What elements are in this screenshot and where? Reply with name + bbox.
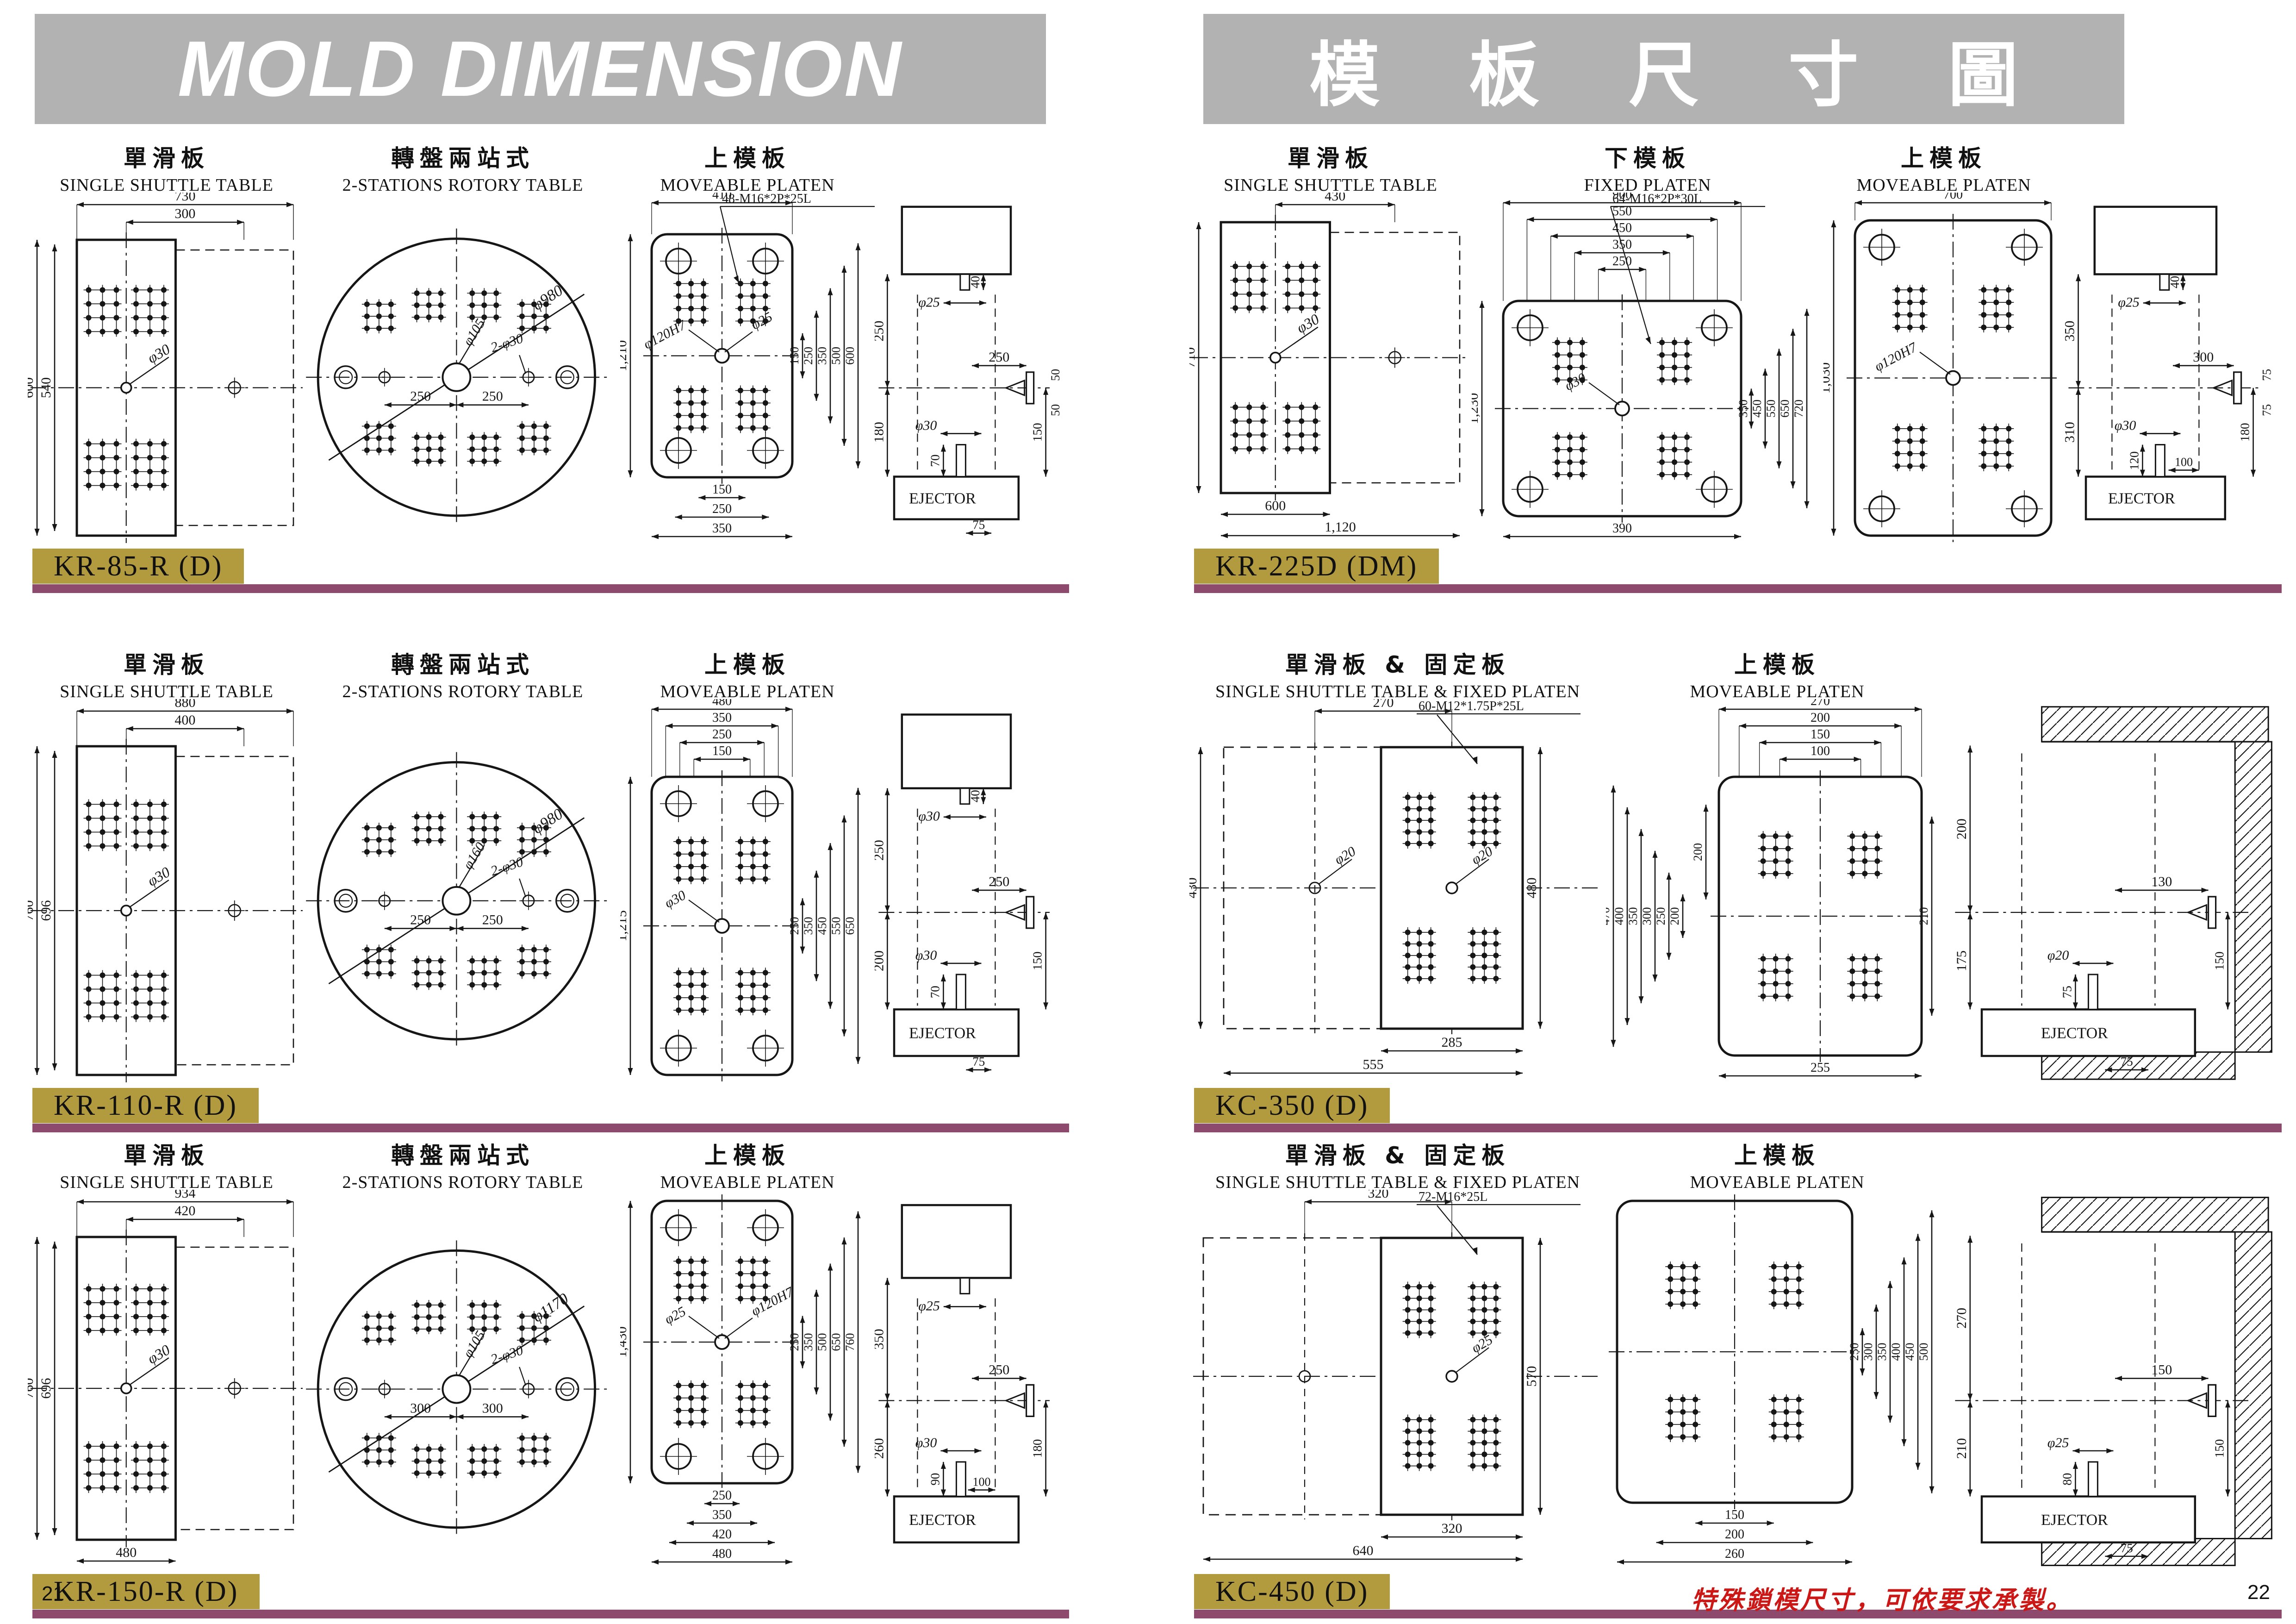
svg-text:720: 720	[1792, 400, 1805, 418]
col-header: 上模板 MOVEABLE PLATEN	[620, 644, 875, 699]
page-title-right: 模 板 尺 寸 圖	[1203, 14, 2124, 124]
col-header: 上模板 MOVEABLE PLATEN	[620, 1135, 875, 1190]
svg-text:350: 350	[712, 521, 732, 536]
svg-text:320: 320	[1368, 1190, 1389, 1201]
svg-text:390: 390	[1612, 521, 1632, 536]
svg-text:500: 500	[815, 1333, 829, 1351]
page-number-left: 21	[42, 1582, 64, 1605]
svg-text:150: 150	[712, 482, 732, 497]
svg-text:75: 75	[972, 1055, 985, 1068]
drawing-kr150-shuttle-table: φ30934420760696480	[28, 1190, 305, 1573]
svg-text:40: 40	[968, 790, 982, 802]
svg-text:200: 200	[1811, 711, 1830, 725]
svg-text:150: 150	[712, 744, 732, 758]
drawing-kr150-rotary-table: φ1170φ1052-φ30300300	[305, 1190, 620, 1573]
svg-text:48-M16*2P*25L: 48-M16*2P*25L	[722, 193, 811, 206]
svg-text:250: 250	[1848, 1343, 1861, 1361]
svg-text:555: 555	[1363, 1057, 1384, 1072]
drawing-kr110-shuttle-table: φ30880400760696	[28, 699, 305, 1087]
svg-text:64-M16*2P*30L: 64-M16*2P*30L	[1612, 193, 1702, 206]
accent-bar	[32, 1124, 1069, 1132]
svg-text:250: 250	[875, 321, 886, 342]
svg-text:EJECTOR: EJECTOR	[909, 1025, 976, 1042]
svg-text:2-φ30: 2-φ30	[489, 854, 525, 879]
svg-text:350: 350	[712, 1508, 732, 1522]
svg-text:75: 75	[2060, 986, 2074, 998]
svg-text:φ20: φ20	[1332, 843, 1358, 868]
svg-text:φ20: φ20	[2047, 948, 2069, 963]
svg-text:600: 600	[28, 377, 36, 398]
svg-text:φ30: φ30	[2115, 418, 2136, 433]
svg-text:270: 270	[1373, 699, 1394, 710]
svg-text:2-φ30: 2-φ30	[489, 331, 525, 356]
svg-text:300: 300	[1861, 1343, 1875, 1361]
svg-text:250: 250	[989, 874, 1009, 889]
svg-text:420: 420	[174, 1203, 195, 1218]
svg-text:φ120H7: φ120H7	[1872, 339, 1920, 375]
svg-text:300: 300	[482, 1400, 503, 1416]
svg-text:350: 350	[712, 711, 732, 725]
svg-text:180: 180	[2238, 423, 2252, 442]
svg-text:75: 75	[972, 518, 985, 532]
svg-text:φ25: φ25	[2118, 294, 2140, 310]
svg-text:270: 270	[1954, 1308, 1969, 1329]
svg-text:200: 200	[1691, 843, 1705, 861]
svg-text:350: 350	[1875, 1343, 1889, 1361]
svg-text:255: 255	[1811, 1061, 1830, 1075]
svg-text:150: 150	[2151, 1362, 2172, 1377]
svg-text:1,120: 1,120	[1325, 519, 1356, 535]
svg-text:640: 640	[1353, 1543, 1374, 1558]
svg-text:150: 150	[788, 347, 801, 365]
svg-text:70: 70	[928, 455, 942, 467]
drawing-kr150-moveable-platen: φ25φ120H72503504204802503505006507601,43…	[620, 1190, 875, 1573]
svg-text:600: 600	[1265, 498, 1286, 513]
col-header: 上模板 MOVEABLE PLATEN	[620, 138, 875, 193]
svg-text:760: 760	[843, 1333, 857, 1351]
svg-text:EJECTOR: EJECTOR	[2041, 1025, 2108, 1042]
col-header: 上模板 MOVEABLE PLATEN	[1823, 138, 2064, 193]
svg-text:40: 40	[2168, 276, 2182, 288]
svg-text:EJECTOR: EJECTOR	[2108, 490, 2175, 507]
col-header: 上模板 MOVEABLE PLATEN	[1606, 1135, 1948, 1190]
svg-text:710: 710	[1189, 347, 1198, 368]
drawing-row: φ304307106001,120 φ309005504503502503903…	[1189, 193, 2282, 548]
svg-text:696: 696	[38, 900, 54, 921]
page-title-left: MOLD DIMENSION	[35, 14, 1046, 124]
svg-text:430: 430	[1325, 193, 1345, 204]
drawing-kr110-moveable-platen: φ304803502501502503504505506501,215	[620, 699, 875, 1087]
svg-text:480: 480	[712, 1547, 732, 1561]
svg-text:300: 300	[2193, 350, 2214, 365]
svg-text:60-M12*1.75P*25L: 60-M12*1.75P*25L	[1419, 699, 1524, 713]
svg-text:250: 250	[482, 389, 503, 404]
svg-text:1,030: 1,030	[1823, 362, 1833, 394]
column-headers: 單滑板 SINGLE SHUTTLE TABLE 轉盤兩站式 2-STATION…	[28, 644, 1069, 699]
svg-text:210: 210	[1954, 1438, 1969, 1459]
column-headers: 單滑板 SINGLE SHUTTLE TABLE 轉盤兩站式 2-STATION…	[28, 1135, 1069, 1190]
col-header: 單滑板 SINGLE SHUTTLE TABLE	[1189, 138, 1472, 193]
special-order-note: 特殊鎖模尺寸，可依要求承製。	[1691, 1580, 2073, 1616]
svg-text:880: 880	[175, 699, 196, 710]
svg-text:EJECTOR: EJECTOR	[909, 1512, 976, 1529]
svg-text:72-M16*25L: 72-M16*25L	[1419, 1190, 1487, 1204]
drawing-kr85-shuttle-table: φ30730300600540	[28, 193, 305, 548]
col-header: 單滑板 & 固定板 SINGLE SHUTTLE TABLE & FIXED P…	[1189, 1135, 1606, 1190]
svg-text:260: 260	[1725, 1547, 1744, 1561]
col-header: 上模板 MOVEABLE PLATEN	[1606, 644, 1948, 699]
svg-text:250: 250	[712, 502, 732, 516]
svg-text:180: 180	[875, 422, 886, 443]
svg-text:φ25: φ25	[918, 1298, 940, 1313]
svg-text:1,215: 1,215	[620, 910, 629, 942]
svg-text:250: 250	[788, 1333, 801, 1351]
svg-text:350: 350	[2064, 321, 2078, 342]
svg-text:270: 270	[1811, 699, 1830, 708]
drawing-kr225d-side-view: 40φ25350310EJECTOR120φ301003001807575	[2064, 193, 2282, 548]
drawing-row: φ30934420760696480 φ1170φ1052-φ30300300 …	[28, 1190, 1069, 1573]
svg-text:100: 100	[2175, 456, 2193, 469]
svg-text:350: 350	[875, 1329, 886, 1349]
drawing-kc450-moveable-platen: 150200260250300350400450500	[1606, 1190, 1948, 1573]
col-header: 單滑板 SINGLE SHUTTLE TABLE	[28, 1135, 305, 1190]
col-header: 下模板 FIXED PLATEN	[1472, 138, 1823, 193]
svg-text:200: 200	[1954, 818, 1969, 839]
svg-text:430: 430	[1189, 878, 1200, 899]
svg-text:250: 250	[712, 727, 732, 742]
svg-text:200: 200	[875, 950, 886, 971]
svg-text:150: 150	[1031, 423, 1045, 442]
svg-text:696: 696	[38, 1378, 54, 1399]
svg-text:730: 730	[175, 193, 196, 204]
drawing-row: φ20φ2027060-M12*1.75P*25L430480285555 27…	[1189, 699, 2282, 1087]
svg-text:200: 200	[1668, 907, 1681, 925]
svg-text:250: 250	[989, 1362, 1009, 1377]
section-kc450: 單滑板 & 固定板 SINGLE SHUTTLE TABLE & FIXED P…	[1189, 1135, 2282, 1619]
svg-text:180: 180	[1031, 1439, 1045, 1458]
svg-text:175: 175	[1954, 950, 1969, 971]
svg-text:150: 150	[2213, 951, 2227, 970]
col-header: 單滑板 SINGLE SHUTTLE TABLE	[28, 138, 305, 193]
svg-text:650: 650	[1778, 400, 1792, 418]
drawing-kr85-side-view: 40φ25250180EJECTOR70φ30250150505075	[875, 193, 1069, 548]
col-header: 轉盤兩站式 2-STATIONS ROTORY TABLE	[305, 138, 620, 193]
svg-text:100: 100	[1811, 744, 1830, 758]
svg-text:450: 450	[815, 917, 829, 935]
svg-text:75: 75	[2260, 404, 2274, 416]
accent-bar	[32, 1610, 1069, 1618]
svg-text:250: 250	[788, 917, 801, 935]
svg-text:40: 40	[968, 276, 982, 288]
drawing-kc350-moveable-platen: 270200150100255210470400350300250200200	[1606, 699, 1948, 1087]
model-badge: KC-350 (D)	[1194, 1088, 1390, 1123]
svg-text:150: 150	[2213, 1439, 2227, 1458]
svg-text:350: 350	[1626, 907, 1640, 925]
svg-text:1,230: 1,230	[1472, 393, 1481, 425]
page-left: MOLD DIMENSION 單滑板 SINGLE SHUTTLE TABLE …	[28, 0, 1069, 1624]
svg-text:480: 480	[712, 699, 732, 708]
drawing-kr150-side-view: φ25350260EJECTOR90φ30100250180	[875, 1190, 1069, 1573]
svg-text:φ30: φ30	[915, 948, 937, 963]
svg-text:400: 400	[1612, 907, 1626, 925]
section-kr150: 單滑板 SINGLE SHUTTLE TABLE 轉盤兩站式 2-STATION…	[28, 1135, 1069, 1619]
col-header: 轉盤兩站式 2-STATIONS ROTORY TABLE	[305, 1135, 620, 1190]
drawing-row: φ30880400760696 φ980φ1602-φ30250250 φ304…	[28, 699, 1069, 1087]
drawing-kr225d-shuttle-table: φ304307106001,120	[1189, 193, 1472, 548]
drawing-row: φ2532072-M16*25L570320640 15020026025030…	[1189, 1190, 2282, 1573]
svg-text:70: 70	[928, 986, 942, 998]
svg-text:φ30: φ30	[915, 418, 937, 433]
svg-text:φ30: φ30	[915, 1435, 937, 1450]
svg-text:φ120H7: φ120H7	[749, 1284, 797, 1319]
col-header: 單滑板 SINGLE SHUTTLE TABLE	[28, 644, 305, 699]
svg-text:300: 300	[1640, 907, 1654, 925]
svg-text:100: 100	[973, 1475, 991, 1488]
svg-text:50: 50	[1049, 369, 1062, 381]
svg-text:320: 320	[1442, 1521, 1462, 1536]
svg-text:250: 250	[410, 389, 431, 404]
section-kr85: 單滑板 SINGLE SHUTTLE TABLE 轉盤兩站式 2-STATION…	[28, 138, 1069, 594]
accent-bar	[1194, 584, 2282, 593]
drawing-kr110-rotary-table: φ980φ1602-φ30250250	[305, 699, 620, 1087]
svg-text:250: 250	[875, 840, 886, 861]
svg-text:480: 480	[116, 1545, 137, 1560]
accent-bar	[32, 584, 1069, 593]
section-kr110: 單滑板 SINGLE SHUTTLE TABLE 轉盤兩站式 2-STATION…	[28, 644, 1069, 1133]
svg-text:420: 420	[712, 1527, 732, 1542]
column-headers: 單滑板 SINGLE SHUTTLE TABLE 轉盤兩站式 2-STATION…	[28, 138, 1069, 193]
svg-text:250: 250	[482, 912, 503, 928]
drawing-kr85-rotary-table: φ980φ1052-φ30250250	[305, 193, 620, 548]
svg-text:210: 210	[1917, 907, 1930, 925]
svg-text:φ25: φ25	[2047, 1435, 2069, 1450]
svg-text:130: 130	[2151, 874, 2172, 889]
model-badge: KR-110-R (D)	[32, 1088, 259, 1123]
svg-text:540: 540	[38, 377, 54, 398]
column-headers: 單滑板 & 固定板 SINGLE SHUTTLE TABLE & FIXED P…	[1189, 1135, 2282, 1190]
svg-text:400: 400	[174, 712, 195, 728]
svg-text:760: 760	[28, 900, 36, 921]
svg-text:500: 500	[829, 347, 843, 365]
page-title-right-text: 模 板 尺 寸 圖	[1277, 18, 2051, 120]
svg-text:φ25: φ25	[918, 294, 940, 310]
svg-text:600: 600	[843, 347, 857, 365]
svg-text:75: 75	[2121, 1541, 2133, 1555]
svg-text:350: 350	[802, 917, 815, 935]
col-header: 單滑板 & 固定板 SINGLE SHUTTLE TABLE & FIXED P…	[1189, 644, 1606, 699]
svg-text:φ30: φ30	[662, 887, 689, 911]
model-badge: KR-150-R (D)	[32, 1574, 260, 1609]
svg-text:250: 250	[410, 912, 431, 928]
svg-text:550: 550	[1764, 400, 1778, 418]
svg-text:1,430: 1,430	[620, 1326, 629, 1358]
svg-text:φ30: φ30	[144, 863, 173, 889]
drawing-kc450-side-view: 270210EJECTOR80φ2515015075	[1948, 1190, 2282, 1573]
svg-text:75: 75	[2121, 1055, 2133, 1068]
svg-text:260: 260	[875, 1438, 886, 1459]
model-badge: KR-85-R (D)	[32, 549, 244, 584]
drawing-kr225d-fixed-platen: φ309005504503502503903504505506507201,23…	[1472, 193, 1823, 548]
svg-text:570: 570	[1524, 1366, 1539, 1387]
svg-text:75: 75	[2260, 369, 2274, 381]
svg-text:760: 760	[28, 1378, 36, 1399]
svg-text:450: 450	[1903, 1343, 1916, 1361]
svg-text:φ25: φ25	[662, 1304, 689, 1327]
svg-text:350: 350	[1736, 400, 1750, 418]
svg-text:500: 500	[1917, 1343, 1930, 1361]
svg-text:50: 50	[1049, 404, 1062, 416]
svg-text:650: 650	[829, 1333, 843, 1351]
drawing-row: φ30730300600540 φ980φ1052-φ30250250 φ120…	[28, 193, 1069, 548]
drawing-kr85-moveable-platen: φ120H7φ254101502503501502503505006001,21…	[620, 193, 875, 548]
svg-text:450: 450	[1750, 400, 1764, 418]
svg-text:250: 250	[712, 1488, 732, 1503]
page-right: 模 板 尺 寸 圖 單滑板 SINGLE SHUTTLE TABLE 下模板 F…	[1189, 0, 2282, 1624]
svg-text:700: 700	[1943, 193, 1963, 202]
svg-text:300: 300	[174, 206, 195, 221]
svg-text:934: 934	[175, 1190, 196, 1201]
section-kr225d: 單滑板 SINGLE SHUTTLE TABLE 下模板 FIXED PLATE…	[1189, 138, 2282, 594]
svg-text:80: 80	[2060, 1473, 2074, 1486]
svg-text:φ30: φ30	[918, 809, 940, 824]
svg-text:250: 250	[989, 350, 1009, 365]
drawing-kr225d-moveable-platen: φ120H77001,030	[1823, 193, 2064, 548]
svg-text:2-φ30: 2-φ30	[489, 1343, 525, 1368]
svg-text:310: 310	[2064, 422, 2078, 443]
drawing-kr110-side-view: 40φ30250200EJECTOR70φ3025015075	[875, 699, 1069, 1087]
svg-text:350: 350	[815, 347, 829, 365]
svg-text:EJECTOR: EJECTOR	[909, 490, 976, 507]
svg-text:250: 250	[1612, 254, 1632, 269]
svg-text:φ30: φ30	[1294, 311, 1322, 337]
svg-text:200: 200	[1725, 1527, 1744, 1542]
svg-text:EJECTOR: EJECTOR	[2041, 1512, 2108, 1529]
svg-text:350: 350	[802, 1333, 815, 1351]
svg-text:90: 90	[928, 1473, 942, 1486]
drawing-kc350-side-view: 200175EJECTOR75φ2013015075	[1948, 699, 2282, 1087]
col-header: 轉盤兩站式 2-STATIONS ROTORY TABLE	[305, 644, 620, 699]
svg-text:250: 250	[802, 347, 815, 365]
column-headers: 單滑板 & 固定板 SINGLE SHUTTLE TABLE & FIXED P…	[1189, 644, 2282, 699]
column-headers: 單滑板 SINGLE SHUTTLE TABLE 下模板 FIXED PLATE…	[1189, 138, 2282, 193]
accent-bar	[1194, 1124, 2282, 1132]
svg-text:φ30: φ30	[1562, 370, 1589, 394]
model-badge: KR-225D (DM)	[1194, 549, 1439, 584]
svg-text:480: 480	[1524, 878, 1539, 899]
svg-text:150: 150	[1811, 727, 1830, 742]
svg-text:φ30: φ30	[144, 1341, 173, 1367]
svg-text:φ120H7: φ120H7	[641, 317, 689, 352]
svg-text:470: 470	[1606, 907, 1612, 925]
svg-text:650: 650	[843, 917, 857, 935]
svg-text:285: 285	[1442, 1035, 1462, 1050]
svg-text:φ1170: φ1170	[529, 1290, 572, 1326]
drawing-kc350-shuttle-fixed: φ20φ2027060-M12*1.75P*25L430480285555	[1189, 699, 1606, 1087]
svg-text:250: 250	[1654, 907, 1668, 925]
svg-text:120: 120	[2127, 451, 2141, 470]
svg-text:550: 550	[829, 917, 843, 935]
svg-text:400: 400	[1889, 1343, 1903, 1361]
svg-text:1,210: 1,210	[620, 340, 629, 372]
page-number-right: 22	[2247, 1581, 2270, 1604]
svg-text:φ30: φ30	[144, 341, 173, 367]
page-title-left-text: MOLD DIMENSION	[178, 24, 903, 114]
svg-text:150: 150	[1031, 951, 1045, 970]
section-kc350: 單滑板 & 固定板 SINGLE SHUTTLE TABLE & FIXED P…	[1189, 644, 2282, 1133]
drawing-kc450-shuttle-fixed: φ2532072-M16*25L570320640	[1189, 1190, 1606, 1573]
svg-text:150: 150	[1725, 1508, 1744, 1522]
svg-text:300: 300	[410, 1400, 431, 1416]
model-badge: KC-450 (D)	[1194, 1574, 1390, 1609]
